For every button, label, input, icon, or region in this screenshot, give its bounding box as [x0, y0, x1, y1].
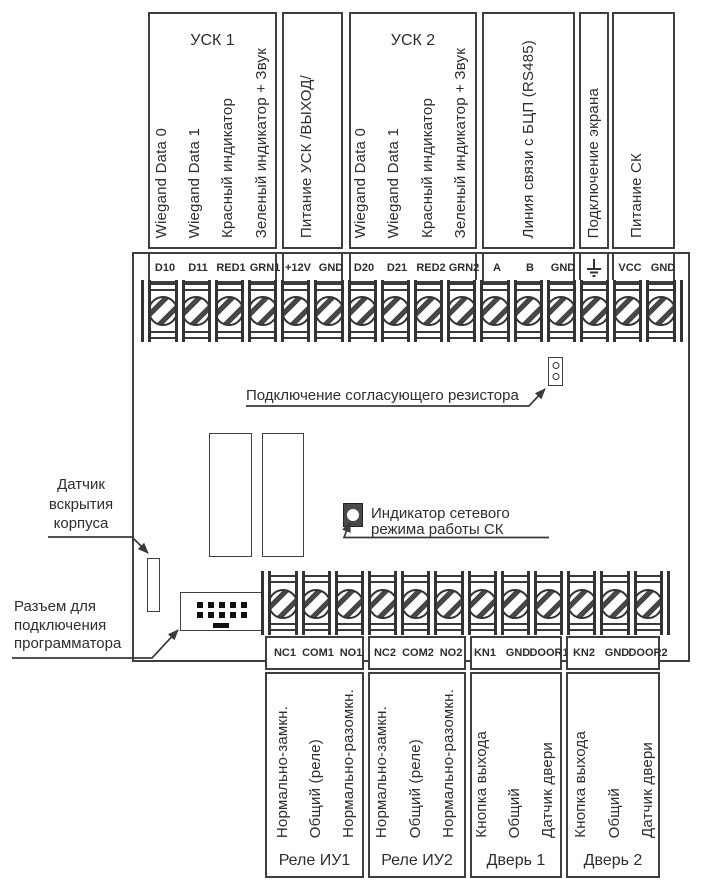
earth-ground-icon — [586, 259, 602, 277]
relay-block-2 — [262, 433, 304, 557]
terminal-label: NC2 — [374, 647, 396, 659]
signal-label: Общий (реле) — [306, 739, 326, 838]
screw-terminal — [281, 296, 311, 326]
screw-terminal — [214, 296, 244, 326]
screw-terminal — [248, 296, 278, 326]
annotation-line: Датчик — [30, 475, 132, 495]
screw-terminal — [613, 296, 643, 326]
screw-terminal — [181, 296, 211, 326]
terminal-label: D21 — [387, 262, 407, 274]
terminal-divider — [606, 280, 616, 342]
programmer-annotation: Разъем для подключения программатора — [14, 598, 121, 654]
terminal-label: NC1 — [274, 647, 296, 659]
signal-label: Подключение экрана — [584, 88, 604, 238]
terminal-label: DOOR1 — [529, 647, 568, 659]
pin — [197, 612, 203, 618]
screw-terminal — [580, 296, 610, 326]
terminal-label: KN1 — [474, 647, 496, 659]
screw-terminal — [447, 296, 477, 326]
terminal-row-relay1: NC1 COM1 NO1 — [265, 636, 364, 670]
terminal-divider — [473, 280, 483, 342]
screw-terminal — [633, 589, 663, 619]
pin — [197, 602, 203, 608]
screw-terminal — [334, 589, 364, 619]
terminal-row-usk2: D20 D21 RED2 GRN2 — [349, 252, 477, 283]
terminal-divider — [527, 571, 537, 635]
terminal-divider — [295, 571, 305, 635]
relay-block-1 — [209, 433, 252, 557]
terminal-label: RED2 — [416, 262, 445, 274]
wiring-diagram: УСК 1 УСК 2 Wiegand Data 0 Wiegand Data … — [0, 0, 709, 895]
annotation-line: Индикатор сетевого — [371, 506, 510, 522]
group-title: Дверь 1 — [472, 852, 560, 870]
terminal-divider — [440, 280, 450, 342]
screw-terminal — [646, 296, 676, 326]
terminal-divider — [261, 571, 271, 635]
terminal-label: GND — [651, 262, 675, 274]
terminal-label: D20 — [354, 262, 374, 274]
terminal-divider — [639, 280, 649, 342]
signal-label: Wiegand Data 1 — [185, 128, 205, 238]
signal-label: Зеленый индикатор + Звук — [451, 48, 471, 238]
signal-label: Нормально-разомкн. — [339, 689, 359, 838]
terminal-label: GND — [605, 647, 629, 659]
screw-terminal — [314, 296, 344, 326]
terminal-row-relay2: NC2 COM2 NO2 — [368, 636, 466, 670]
screw-terminal — [368, 589, 398, 619]
screw-terminal — [546, 296, 576, 326]
terminal-divider — [361, 571, 371, 635]
resistor-annotation: Подключение согласующего резистора — [246, 387, 519, 406]
terminal-row-usk1: D10 D11 RED1 GRN1 — [148, 252, 277, 283]
terminal-label: D10 — [155, 262, 175, 274]
screw-terminal — [513, 296, 543, 326]
terminal-divider — [593, 571, 603, 635]
pin — [219, 612, 225, 618]
terminal-row-shield — [579, 252, 609, 283]
jumper-pin — [552, 362, 559, 369]
terminal-divider — [494, 571, 504, 635]
terminal-label: B — [526, 262, 534, 274]
screw-terminal — [347, 296, 377, 326]
led-lens-icon — [347, 509, 359, 521]
terminal-strip-top — [144, 280, 678, 342]
terminal-label: GRN2 — [449, 262, 480, 274]
terminal-divider — [374, 280, 384, 342]
pin — [241, 612, 247, 618]
annotation-line: режима работы СК — [371, 522, 510, 538]
jumper-pin — [552, 373, 559, 380]
terminal-divider — [328, 571, 338, 635]
screw-terminal — [380, 296, 410, 326]
terminal-divider — [341, 280, 351, 342]
signal-label: Общий — [605, 788, 625, 838]
group-title: Дверь 2 — [568, 852, 658, 870]
signal-label: Датчик двери — [538, 742, 558, 838]
signal-label: Общий (реле) — [406, 739, 426, 838]
terminal-divider — [673, 280, 683, 342]
pin — [208, 602, 214, 608]
terminal-row-rs485: A B GND — [482, 252, 575, 283]
signal-label: Зеленый индикатор + Звук — [252, 48, 272, 238]
terminal-divider — [307, 280, 317, 342]
signal-label: Wiegand Data 0 — [152, 128, 172, 238]
signal-label: Кнопка выхода — [571, 731, 591, 838]
terminal-label: A — [493, 262, 501, 274]
pin — [208, 612, 214, 618]
screw-terminal — [301, 589, 331, 619]
connector-pins — [197, 602, 247, 618]
pin — [230, 612, 236, 618]
signal-label: Питание СК — [627, 153, 647, 238]
signal-label: Питание УСК /ВЫХОД/ — [297, 75, 317, 238]
terminal-label: DOOR2 — [628, 647, 667, 659]
screw-terminal — [268, 589, 298, 619]
signal-label: Кнопка выхода — [472, 731, 492, 838]
screw-terminal — [401, 589, 431, 619]
terminal-label: GRN1 — [250, 262, 281, 274]
screw-terminal — [467, 589, 497, 619]
signal-label: Нормально-разомкн. — [439, 689, 459, 838]
terminal-divider — [540, 280, 550, 342]
screw-terminal — [567, 589, 597, 619]
terminal-label: VCC — [618, 262, 641, 274]
terminal-label: RED1 — [216, 262, 245, 274]
terminal-divider — [208, 280, 218, 342]
annotation-line: вскрытия — [30, 495, 132, 515]
pin — [241, 602, 247, 608]
annotation-line: подключения — [14, 617, 121, 636]
group-title: Реле ИУ2 — [370, 852, 464, 870]
screw-terminal — [414, 296, 444, 326]
screw-terminal — [534, 589, 564, 619]
terminal-row-power-sk: VCC GND — [612, 252, 675, 283]
terminal-divider — [274, 280, 284, 342]
pin — [230, 602, 236, 608]
led-annotation: Индикатор сетевого режима работы СК — [371, 506, 510, 538]
pin — [219, 602, 225, 608]
connector-notch — [213, 623, 229, 628]
signal-label: Датчик двери — [638, 742, 658, 838]
terminal-label: +12V — [285, 262, 311, 274]
terminal-divider — [241, 280, 251, 342]
terminal-label: GND — [506, 647, 530, 659]
signal-label: Нормально-замкн. — [372, 706, 392, 838]
terminal-label: NO1 — [340, 647, 363, 659]
signal-label: Нормально-замкн. — [273, 706, 293, 838]
screw-terminal — [600, 589, 630, 619]
tamper-sensor — [147, 558, 160, 612]
terminal-divider — [660, 571, 670, 635]
terminal-divider — [507, 280, 517, 342]
terminal-row-door2: KN2 GND DOOR2 — [566, 636, 660, 670]
terminal-label: GND — [319, 262, 343, 274]
terminal-divider — [407, 280, 417, 342]
network-led — [343, 503, 363, 527]
signal-label: Wiegand Data 1 — [384, 128, 404, 238]
terminal-label: GND — [551, 262, 575, 274]
terminal-label: NO2 — [440, 647, 463, 659]
signal-label: Красный индикатор — [418, 98, 438, 238]
terminal-label: COM1 — [302, 647, 334, 659]
screw-terminal — [480, 296, 510, 326]
screw-terminal — [500, 589, 530, 619]
programmer-connector — [180, 592, 262, 631]
terminal-label: KN2 — [573, 647, 595, 659]
terminal-divider — [175, 280, 185, 342]
terminal-row-door1: KN1 GND DOOR1 — [470, 636, 562, 670]
terminal-row-power-usk: +12V GND — [282, 252, 343, 283]
terminal-label: D11 — [188, 262, 208, 274]
terminal-divider — [394, 571, 404, 635]
annotation-line: программатора — [14, 635, 121, 654]
annotation-line: Разъем для — [14, 598, 121, 617]
signal-label: Линия связи с БЦП (RS485) — [519, 40, 539, 238]
screw-terminal — [148, 296, 178, 326]
terminal-divider — [427, 571, 437, 635]
terminal-divider — [141, 280, 151, 342]
terminal-divider — [461, 571, 471, 635]
signal-label: Общий — [505, 788, 525, 838]
signal-label: Красный индикатор — [218, 98, 238, 238]
signal-label: Wiegand Data 0 — [351, 128, 371, 238]
terminal-divider — [560, 571, 570, 635]
terminal-divider — [627, 571, 637, 635]
group-title: Реле ИУ1 — [267, 852, 362, 870]
terminal-label: COM2 — [402, 647, 434, 659]
terminal-divider — [573, 280, 583, 342]
screw-terminal — [434, 589, 464, 619]
terminal-strip-bottom — [263, 571, 666, 635]
annotation-line: корпуса — [30, 514, 132, 534]
resistor-jumper — [548, 357, 563, 386]
tamper-annotation: Датчик вскрытия корпуса — [30, 475, 132, 534]
